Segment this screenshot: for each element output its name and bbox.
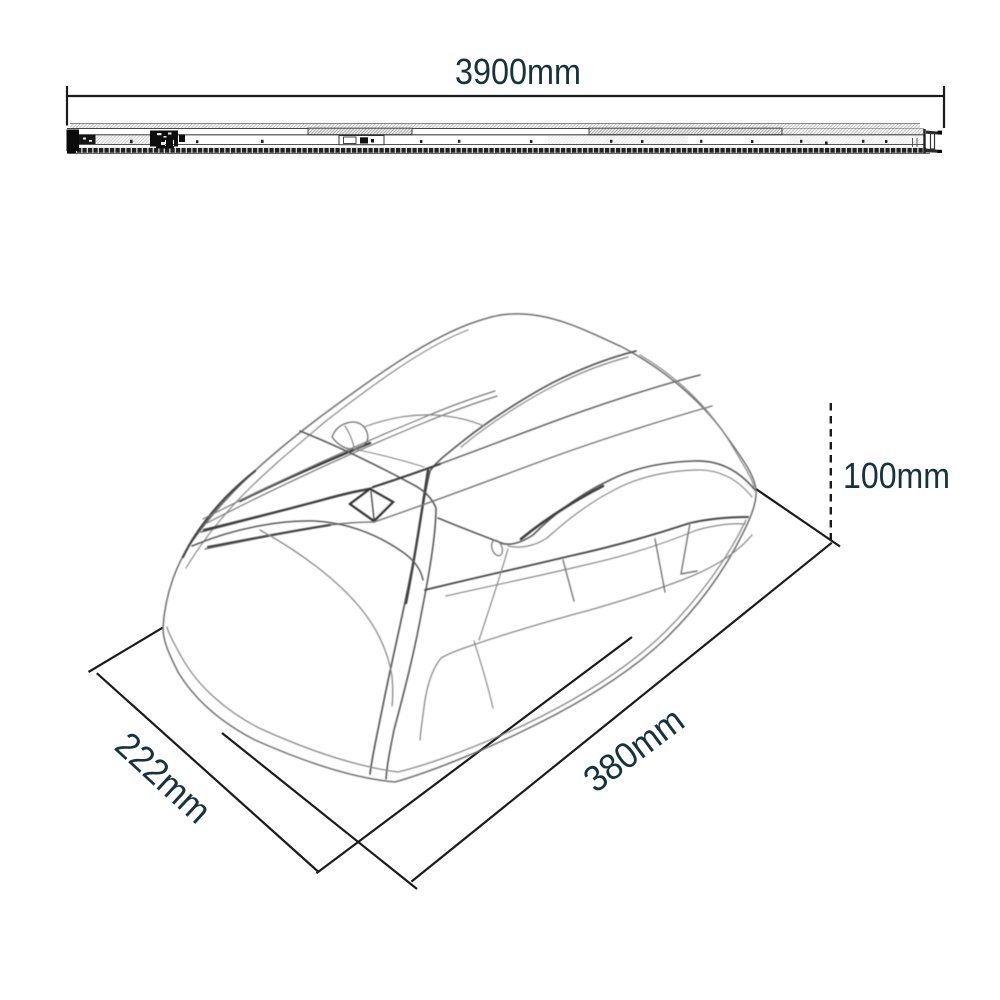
svg-text:3900mm: 3900mm — [455, 51, 581, 92]
svg-text:380mm: 380mm — [576, 699, 692, 800]
svg-text:222mm: 222mm — [107, 724, 219, 831]
svg-text:100mm: 100mm — [843, 455, 950, 496]
